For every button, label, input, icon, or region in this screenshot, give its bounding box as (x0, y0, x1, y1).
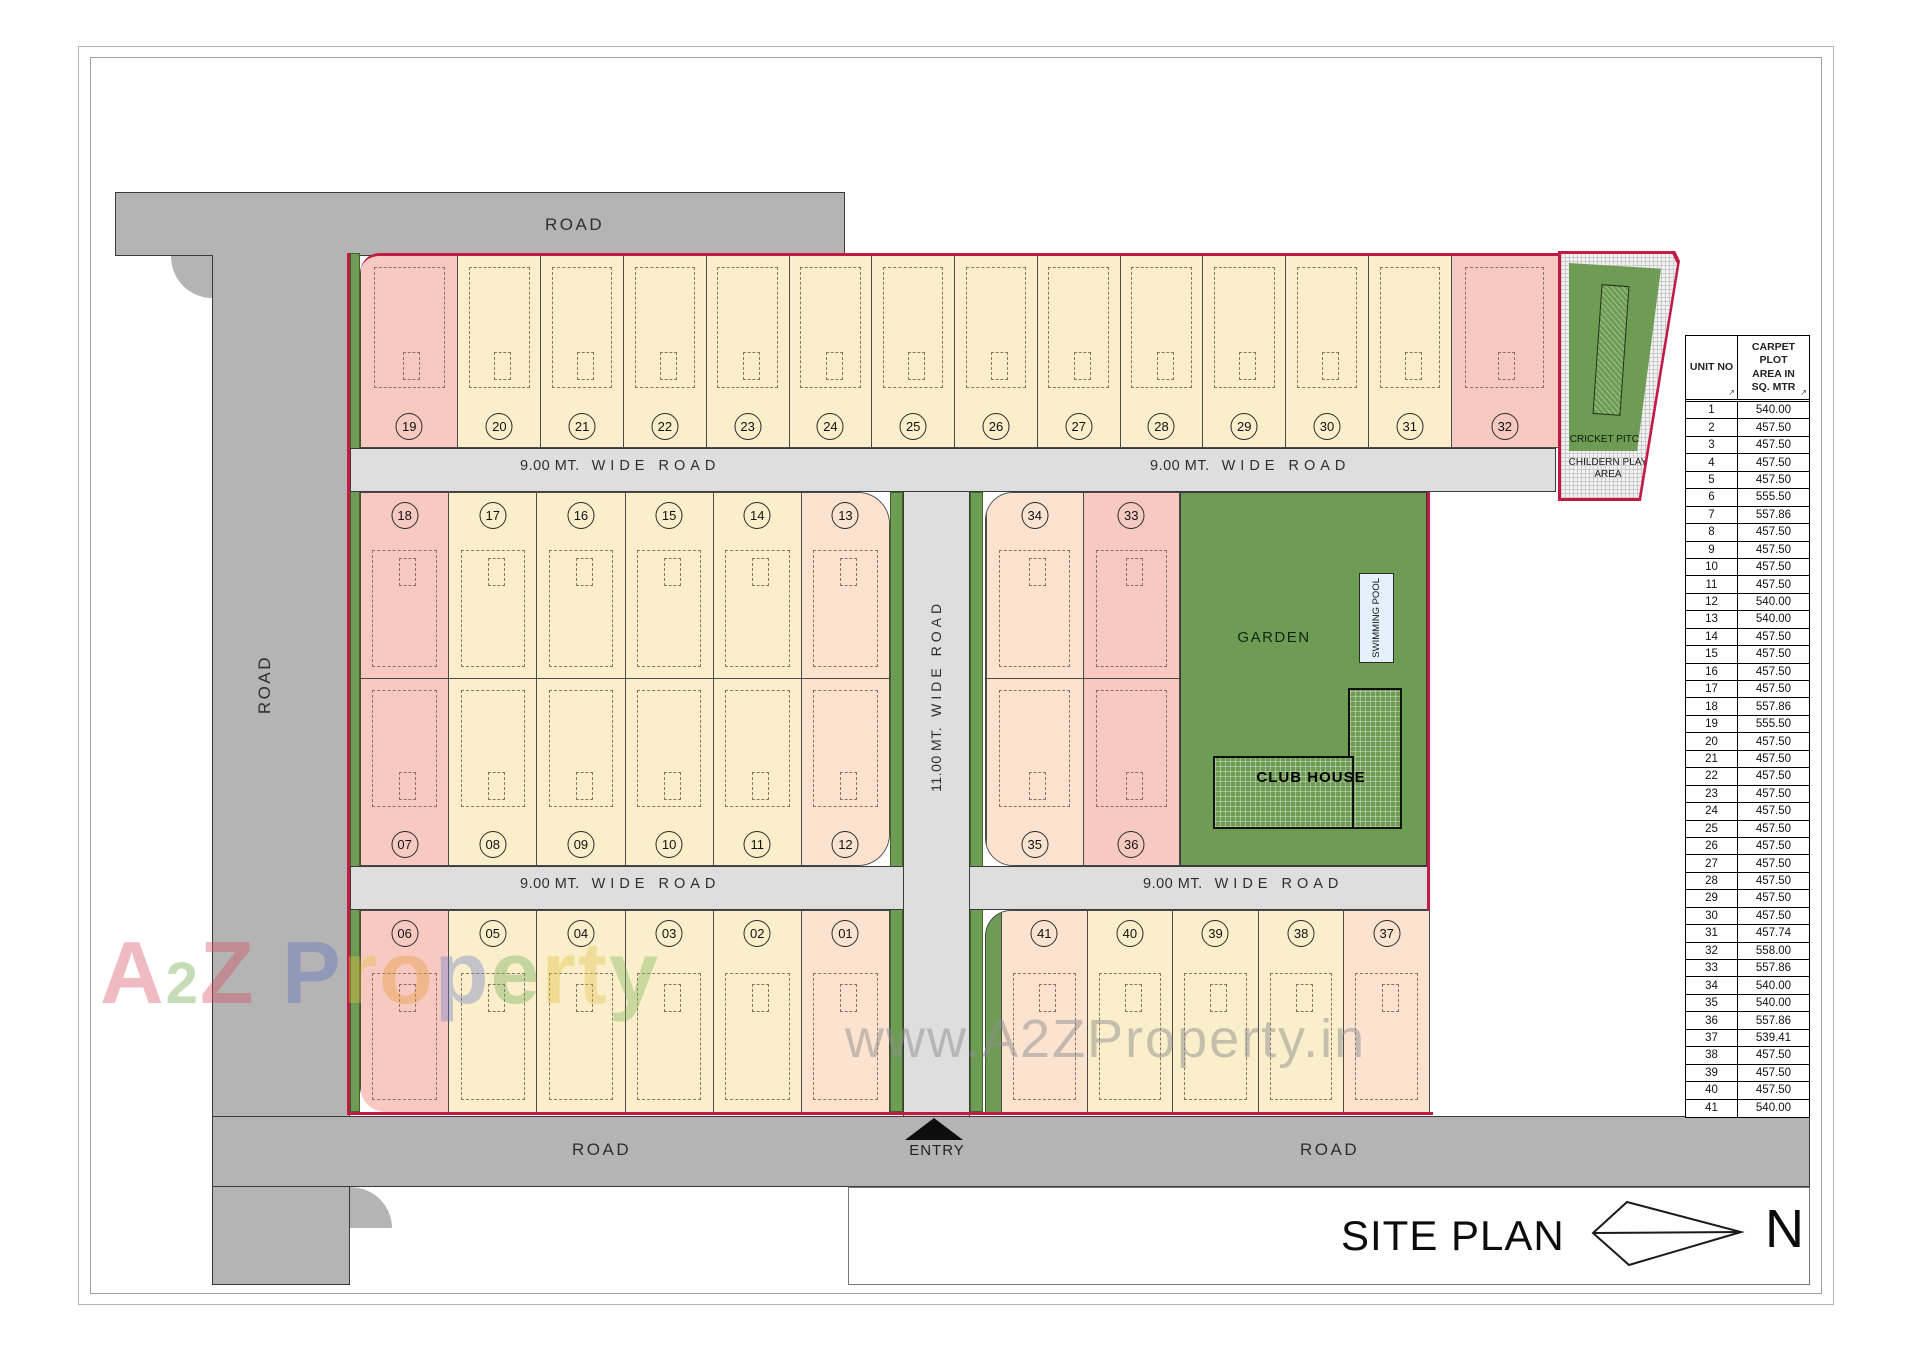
unit-no-cell: 5 (1686, 472, 1738, 488)
watermark-letter (256, 923, 282, 1022)
road-lower-label-right: 9.00 MT.WIDE ROAD (1143, 876, 1343, 892)
garden-label: GARDEN (1209, 629, 1339, 646)
building-footprint-tab (576, 558, 593, 586)
club-house-wing (1348, 688, 1402, 829)
area-cell: 457.50 (1738, 1065, 1809, 1081)
area-cell: 557.86 (1738, 507, 1809, 523)
plot: 27 (1037, 256, 1120, 447)
road-left-label: ROAD (255, 655, 275, 714)
plot-number: 29 (1231, 413, 1258, 440)
plot: 25 (871, 256, 954, 447)
unit-no-cell: 30 (1686, 908, 1738, 924)
building-footprint-tab (576, 772, 593, 800)
watermark-letter: P (282, 923, 343, 1022)
unit-no-cell: 34 (1686, 977, 1738, 993)
table-row: 7 557.86 (1686, 507, 1809, 524)
cricket-pitch-label: CRICKET PITCH (1569, 434, 1647, 446)
plot-block-mid-left: 18 17 16 15 (360, 492, 890, 866)
plot: 16 (536, 493, 624, 678)
building-footprint-tab (494, 352, 511, 380)
table-row: 37 539.41 (1686, 1030, 1809, 1047)
plot-number: 14 (744, 502, 771, 529)
unit-no-cell: 36 (1686, 1012, 1738, 1028)
unit-no-cell: 32 (1686, 943, 1738, 959)
plot: 34 (986, 493, 1083, 678)
plot: 07 (360, 679, 448, 865)
road-lower-label-left: 9.00 MT.WIDE ROAD (520, 876, 720, 892)
website-watermark: www.A2ZProperty.in (845, 1008, 1366, 1070)
building-footprint-tab (752, 558, 769, 586)
plot-number: 16 (567, 502, 594, 529)
plot: 18 (360, 493, 448, 678)
table-row: 17 457.50 (1686, 681, 1809, 698)
site-plan-page: ROAD ROAD ROAD ROAD 9.00 MT.WIDE ROAD 9.… (0, 0, 1920, 1357)
plot-number: 33 (1118, 502, 1145, 529)
area-cell: 540.00 (1738, 995, 1809, 1011)
building-footprint-tab (1498, 352, 1515, 380)
unit-no-cell: 24 (1686, 803, 1738, 819)
building-footprint-tab (1126, 772, 1143, 800)
area-cell: 540.00 (1738, 594, 1809, 610)
plot-number: 31 (1396, 413, 1423, 440)
building-footprint-tab (1126, 558, 1143, 586)
plot: 02 (713, 911, 801, 1112)
area-cell: 540.00 (1738, 977, 1809, 993)
building-footprint-tab (826, 352, 843, 380)
unit-no-cell: 27 (1686, 855, 1738, 871)
children-play-area-label: CHILDERN PLAY AREA (1565, 457, 1651, 480)
unit-no-cell: 39 (1686, 1065, 1738, 1081)
unit-no-cell: 9 (1686, 542, 1738, 558)
area-cell: 457.50 (1738, 419, 1809, 435)
plot: 09 (536, 679, 624, 865)
building-footprint-tab (1405, 352, 1422, 380)
area-cell: 555.50 (1738, 489, 1809, 505)
site-plan-title: SITE PLAN (1341, 1212, 1565, 1260)
table-row: 11 457.50 (1686, 576, 1809, 593)
plot-number: 11 (744, 831, 771, 858)
plot-number: 12 (832, 831, 859, 858)
area-cell: 540.00 (1738, 402, 1809, 418)
plot: 20 (457, 256, 540, 447)
area-cell: 457.50 (1738, 664, 1809, 680)
table-row: 16 457.50 (1686, 664, 1809, 681)
sort-mark-icon: ↗ (1728, 388, 1735, 398)
unit-no-cell: 6 (1686, 489, 1738, 505)
area-cell: 540.00 (1738, 1100, 1809, 1117)
table-row: 15 457.50 (1686, 646, 1809, 663)
north-arrow-icon (1591, 1200, 1761, 1274)
table-row: 25 457.50 (1686, 821, 1809, 838)
building-footprint-tab (1322, 352, 1339, 380)
plot-number: 02 (744, 920, 771, 947)
table-row: 1 540.00 (1686, 402, 1809, 419)
area-cell: 555.50 (1738, 716, 1809, 732)
building-footprint-tab (664, 772, 681, 800)
table-row: 24 457.50 (1686, 803, 1809, 820)
area-cell: 557.86 (1738, 698, 1809, 714)
area-cell: 457.50 (1738, 472, 1809, 488)
plot-number: 09 (567, 831, 594, 858)
plot-number: 39 (1202, 920, 1229, 947)
sort-mark-icon: ↗ (1800, 388, 1807, 398)
plot: 33 (1083, 493, 1180, 678)
plot-number: 38 (1288, 920, 1315, 947)
road-top (115, 192, 845, 256)
unit-no-cell: 41 (1686, 1100, 1738, 1117)
watermark-letter: y (609, 923, 660, 1022)
unit-no-cell: 22 (1686, 768, 1738, 784)
plot-row: 35 36 (986, 679, 1179, 865)
unit-no-cell: 11 (1686, 576, 1738, 592)
plot-number: 41 (1031, 920, 1058, 947)
area-cell: 457.50 (1738, 542, 1809, 558)
plot-number: 27 (1065, 413, 1092, 440)
plot: 23 (706, 256, 789, 447)
plot-number: 35 (1021, 831, 1048, 858)
unit-area-table: UNIT NO ↗ CARPET PLOT AREA IN SQ. MTR ↗ … (1685, 335, 1810, 1118)
unit-no-cell: 38 (1686, 1047, 1738, 1063)
plot-number: 30 (1314, 413, 1341, 440)
swimming-pool-label: SWIMMING POOL (1371, 578, 1382, 658)
plot-number: 15 (656, 502, 683, 529)
table-row: 23 457.50 (1686, 786, 1809, 803)
plot-number: 20 (486, 413, 513, 440)
plot-block-top-row: 19 20 21 22 23 (360, 253, 1558, 448)
plot-number: 22 (651, 413, 678, 440)
unit-no-cell: 25 (1686, 821, 1738, 837)
table-row: 2 457.50 (1686, 419, 1809, 436)
table-row: 22 457.50 (1686, 768, 1809, 785)
plot-number: 17 (479, 502, 506, 529)
table-row: 9 457.50 (1686, 542, 1809, 559)
table-row: 38 457.50 (1686, 1047, 1809, 1064)
building-footprint-tab (1382, 984, 1399, 1012)
plot: 12 (801, 679, 889, 865)
building-footprint-tab (840, 558, 857, 586)
table-row: 30 457.50 (1686, 908, 1809, 925)
unit-no-cell: 4 (1686, 454, 1738, 470)
plot: 30 (1285, 256, 1368, 447)
area-cell: 457.50 (1738, 454, 1809, 470)
garden-area: GARDEN SWIMMING POOL CLUB HOUSE (1180, 492, 1427, 866)
plot: 36 (1083, 679, 1180, 865)
unit-no-cell: 15 (1686, 646, 1738, 662)
unit-no-cell: 18 (1686, 698, 1738, 714)
plot: 31 (1368, 256, 1451, 447)
unit-no-cell: 3 (1686, 437, 1738, 453)
building-footprint-tab (991, 352, 1008, 380)
plot-number: 40 (1116, 920, 1143, 947)
table-row: 33 557.86 (1686, 960, 1809, 977)
plot: 15 (625, 493, 713, 678)
cricket-green-area: CRICKET PITCH (1569, 263, 1661, 451)
plot-number: 08 (479, 831, 506, 858)
plot-number: 23 (734, 413, 761, 440)
table-row: 26 457.50 (1686, 838, 1809, 855)
plot-row: 34 33 (986, 493, 1179, 679)
table-row: 21 457.50 (1686, 751, 1809, 768)
table-row: 14 457.50 (1686, 629, 1809, 646)
plot: 21 (540, 256, 623, 447)
table-row: 18 557.86 (1686, 698, 1809, 715)
plot-number: 18 (391, 502, 418, 529)
table-row: 28 457.50 (1686, 873, 1809, 890)
area-cell: 540.00 (1738, 611, 1809, 627)
plot-number: 19 (396, 413, 423, 440)
plot-number: 26 (982, 413, 1009, 440)
watermark-letter: r (343, 923, 379, 1022)
unit-no-cell: 33 (1686, 960, 1738, 976)
unit-no-cell: 40 (1686, 1082, 1738, 1098)
plot: 32 (1451, 256, 1558, 447)
plot: 35 (986, 679, 1083, 865)
plot-block-mid-right: 34 33 35 36 (985, 492, 1180, 866)
watermark-letter: 2 (166, 951, 200, 1016)
area-cell: 457.50 (1738, 1047, 1809, 1063)
area-cell: 457.50 (1738, 751, 1809, 767)
building-footprint-tab (752, 984, 769, 1012)
table-row: 10 457.50 (1686, 559, 1809, 576)
plot: 13 (801, 493, 889, 678)
watermark-letter: t (578, 923, 609, 1022)
building-footprint-tab (664, 558, 681, 586)
building-footprint-tab (664, 984, 681, 1012)
plot: 14 (713, 493, 801, 678)
plot: 08 (448, 679, 536, 865)
building-footprint-tab (488, 558, 505, 586)
table-row: 32 558.00 (1686, 943, 1809, 960)
plot-number: 01 (832, 920, 859, 947)
road-bottom-label-right: ROAD (1300, 1140, 1359, 1160)
table-row: 34 540.00 (1686, 977, 1809, 994)
area-cell: 457.50 (1738, 524, 1809, 540)
area-cell: 457.50 (1738, 646, 1809, 662)
table-header-carpet-area: CARPET PLOT AREA IN SQ. MTR ↗ (1738, 336, 1809, 399)
table-row: 29 457.50 (1686, 890, 1809, 907)
table-row: 6 555.50 (1686, 489, 1809, 506)
plot: 11 (713, 679, 801, 865)
watermark-letter: o (379, 923, 435, 1022)
watermark-letter: e (491, 923, 542, 1022)
building-footprint-tab (743, 352, 760, 380)
unit-no-cell: 20 (1686, 733, 1738, 749)
building-footprint-tab (840, 772, 857, 800)
unit-no-cell: 19 (1686, 716, 1738, 732)
unit-no-cell: 7 (1686, 507, 1738, 523)
table-row: 5 457.50 (1686, 472, 1809, 489)
plot-number: 07 (391, 831, 418, 858)
unit-no-cell: 1 (1686, 402, 1738, 418)
table-row: 12 540.00 (1686, 594, 1809, 611)
estate-boundary-bottom (347, 1112, 1433, 1115)
unit-no-cell: 2 (1686, 419, 1738, 435)
watermark-letter: r (541, 923, 577, 1022)
plot-number: 36 (1118, 831, 1145, 858)
club-house-label: CLUB HOUSE (1226, 769, 1396, 786)
building-footprint-tab (488, 772, 505, 800)
area-cell: 457.50 (1738, 576, 1809, 592)
table-row: 27 457.50 (1686, 855, 1809, 872)
table-row: 19 555.50 (1686, 716, 1809, 733)
building-footprint-tab (1157, 352, 1174, 380)
area-cell: 457.50 (1738, 821, 1809, 837)
plot: 22 (623, 256, 706, 447)
area-cell: 457.74 (1738, 925, 1809, 941)
plot-number: 13 (832, 502, 859, 529)
road-bottom (212, 1116, 1810, 1187)
area-cell: 557.86 (1738, 1012, 1809, 1028)
table-header-unit-no: UNIT NO ↗ (1686, 336, 1738, 399)
unit-no-cell: 8 (1686, 524, 1738, 540)
unit-no-cell: 35 (1686, 995, 1738, 1011)
unit-no-cell: 26 (1686, 838, 1738, 854)
area-cell: 457.50 (1738, 681, 1809, 697)
unit-no-cell: 37 (1686, 1030, 1738, 1046)
unit-no-cell: 31 (1686, 925, 1738, 941)
swimming-pool: SWIMMING POOL (1359, 573, 1394, 663)
plot-number: 37 (1373, 920, 1400, 947)
area-cell: 457.50 (1738, 890, 1809, 906)
table-row: 3 457.50 (1686, 437, 1809, 454)
table-row: 31 457.74 (1686, 925, 1809, 942)
watermark-letter: Z (200, 923, 256, 1022)
area-cell: 557.86 (1738, 960, 1809, 976)
plot-row: 18 17 16 15 (360, 493, 889, 679)
plot-number: 32 (1491, 413, 1518, 440)
watermark-letter: A (100, 923, 166, 1022)
unit-no-cell: 16 (1686, 664, 1738, 680)
area-cell: 457.50 (1738, 733, 1809, 749)
plot: 19 (360, 256, 457, 447)
plot: 29 (1202, 256, 1285, 447)
plot-number: 34 (1021, 502, 1048, 529)
area-cell: 457.50 (1738, 629, 1809, 645)
plot-number: 28 (1148, 413, 1175, 440)
road-top-label: ROAD (545, 215, 604, 235)
area-cell: 457.50 (1738, 873, 1809, 889)
area-cell: 457.50 (1738, 908, 1809, 924)
table-row: 20 457.50 (1686, 733, 1809, 750)
plot-number: 24 (817, 413, 844, 440)
building-footprint-tab (1074, 352, 1091, 380)
table-row: 8 457.50 (1686, 524, 1809, 541)
entry-label: ENTRY (897, 1142, 977, 1159)
area-cell: 539.41 (1738, 1030, 1809, 1046)
north-label: N (1765, 1198, 1804, 1260)
building-footprint-tab (577, 352, 594, 380)
table-row: 35 540.00 (1686, 995, 1809, 1012)
plot-row: 07 08 09 10 (360, 679, 889, 865)
area-cell: 457.50 (1738, 786, 1809, 802)
building-footprint-tab (1029, 558, 1046, 586)
area-cell: 457.50 (1738, 838, 1809, 854)
plot: 28 (1120, 256, 1203, 447)
unit-no-cell: 13 (1686, 611, 1738, 627)
building-footprint-tab (1239, 352, 1256, 380)
table-row: 40 457.50 (1686, 1082, 1809, 1099)
table-row: 36 557.86 (1686, 1012, 1809, 1029)
unit-no-cell: 28 (1686, 873, 1738, 889)
plot: 10 (625, 679, 713, 865)
a2z-property-watermark: A2Z Property (100, 922, 660, 1024)
building-footprint-tab (399, 772, 416, 800)
building-footprint-tab (1029, 772, 1046, 800)
unit-no-cell: 12 (1686, 594, 1738, 610)
plot-number: 21 (569, 413, 596, 440)
cricket-pitch-shape (1592, 284, 1629, 416)
area-cell: 457.50 (1738, 559, 1809, 575)
table-body: 1 540.00 2 457.50 3 457.50 4 457.50 (1686, 402, 1809, 1117)
road-upper-label-left: 9.00 MT.WIDE ROAD (520, 458, 720, 474)
area-cell: 558.00 (1738, 943, 1809, 959)
table-row: 13 540.00 (1686, 611, 1809, 628)
road-central-label: 11.00 MT.WIDE ROAD (928, 600, 944, 792)
unit-no-cell: 10 (1686, 559, 1738, 575)
plot: 26 (954, 256, 1037, 447)
table-row: 4 457.50 (1686, 454, 1809, 471)
area-cell: 457.50 (1738, 1082, 1809, 1098)
building-footprint-tab (403, 352, 420, 380)
area-cell: 457.50 (1738, 437, 1809, 453)
unit-no-cell: 14 (1686, 629, 1738, 645)
building-footprint-tab (399, 558, 416, 586)
area-cell: 457.50 (1738, 855, 1809, 871)
unit-no-cell: 23 (1686, 786, 1738, 802)
plot-number: 25 (900, 413, 927, 440)
unit-no-cell: 17 (1686, 681, 1738, 697)
table-header-row: UNIT NO ↗ CARPET PLOT AREA IN SQ. MTR ↗ (1686, 336, 1809, 402)
area-cell: 457.50 (1738, 803, 1809, 819)
road-upper-label-right: 9.00 MT.WIDE ROAD (1150, 458, 1350, 474)
plot-number: 10 (656, 831, 683, 858)
area-cell: 457.50 (1738, 768, 1809, 784)
building-footprint-tab (752, 772, 769, 800)
title-block: SITE PLAN N (848, 1187, 1810, 1285)
table-row: 39 457.50 (1686, 1065, 1809, 1082)
unit-no-cell: 21 (1686, 751, 1738, 767)
unit-no-cell: 29 (1686, 890, 1738, 906)
plot: 24 (789, 256, 872, 447)
table-row: 41 540.00 (1686, 1100, 1809, 1117)
road-bottom-label-left: ROAD (572, 1140, 631, 1160)
building-footprint-tab (660, 352, 677, 380)
club-house-wing (1213, 756, 1354, 829)
entry-arrow-icon (905, 1118, 963, 1140)
plot: 17 (448, 493, 536, 678)
watermark-letter: p (435, 923, 491, 1022)
building-footprint-tab (908, 352, 925, 380)
